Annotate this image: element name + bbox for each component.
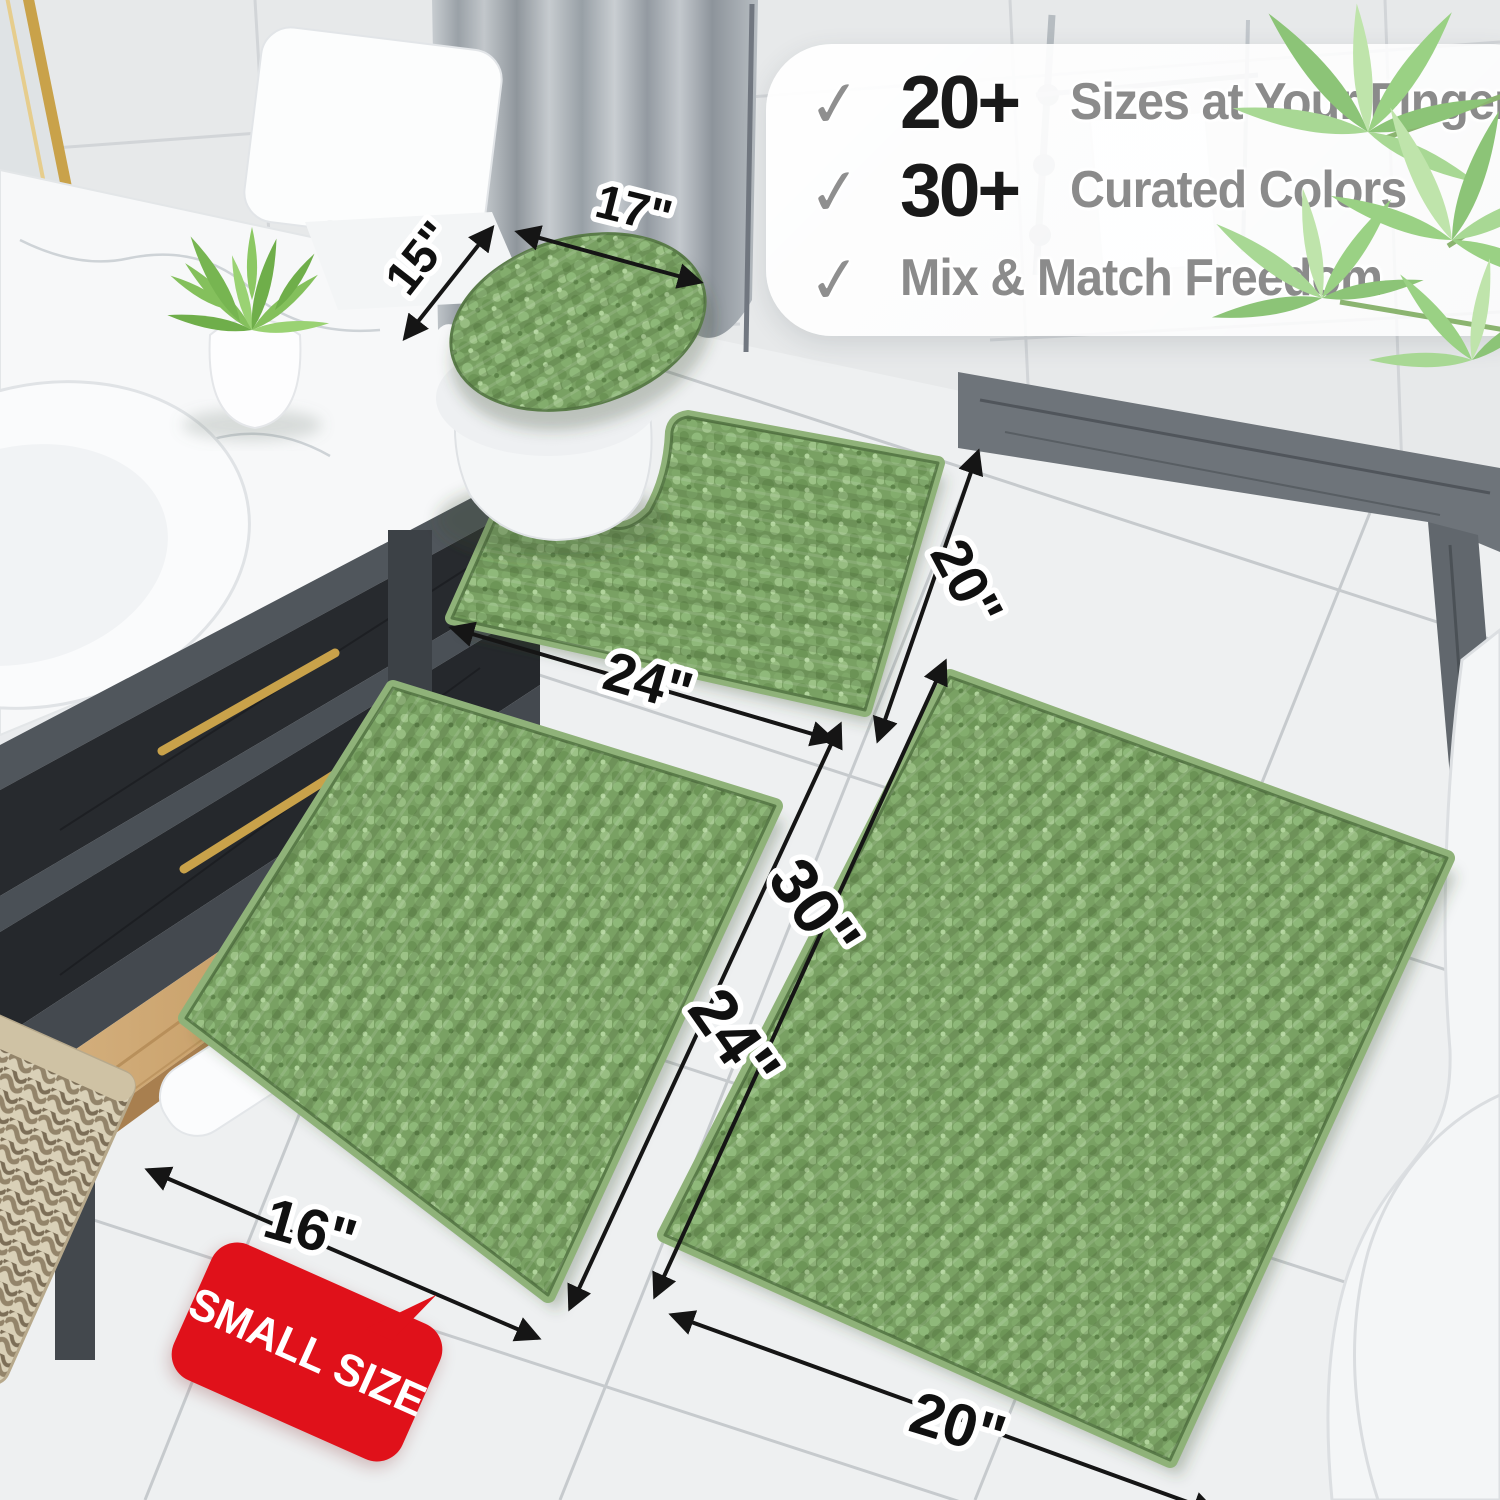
check-icon: ✓ (804, 148, 903, 232)
bath-rug-product-image: MISQ (0, 0, 1500, 1500)
check-icon: ✓ (804, 60, 903, 144)
feature-count: 20+ (900, 59, 1070, 145)
feature-row: ✓ Mix & Match Freedom (808, 234, 1500, 322)
feature-label: Curated Colors (1070, 160, 1406, 220)
feature-label: Sizes at Your Fingertips (1070, 72, 1500, 132)
feature-row: ✓ 30+ Curated Colors (808, 146, 1500, 234)
check-icon: ✓ (804, 236, 903, 320)
feature-callout: ✓ 20+ Sizes at Your Fingertips ✓ 30+ Cur… (766, 44, 1500, 336)
feature-count: 30+ (900, 147, 1070, 233)
feature-label: Mix & Match Freedom (900, 248, 1382, 308)
feature-row: ✓ 20+ Sizes at Your Fingertips (808, 58, 1500, 146)
